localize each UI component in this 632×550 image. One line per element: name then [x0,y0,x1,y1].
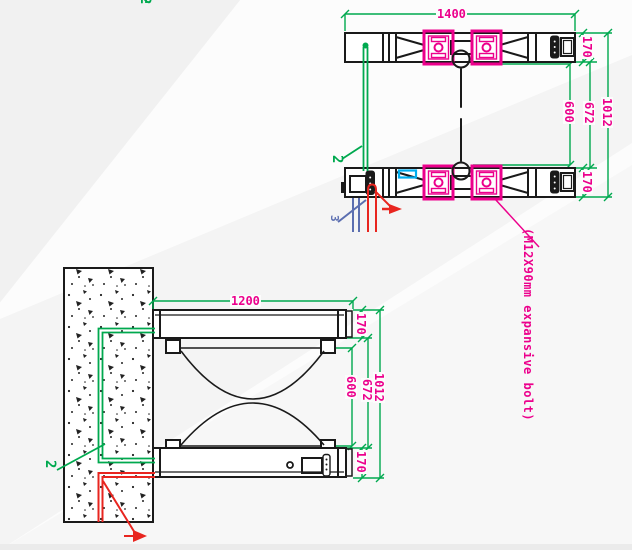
red-arrowhead [133,530,147,542]
plan-cable-blue [338,198,366,232]
cad-drawing-canvas: 1400 170 600 672 1012 170 1200 170 600 6… [0,0,632,550]
side-horn-assembly [165,340,335,453]
dim-plan-between-rails: 672 [583,101,595,125]
dim-side-cab-top: 170 [355,312,367,336]
dim-plan-overall-depth: 1012 [601,97,613,128]
dim-side-inner-span: 600 [345,375,357,399]
mount-tab [341,182,345,193]
bolt-note-label: (M12X90mm expansive bolt) [522,228,534,421]
dim-plan-overall-width: 1400 [436,8,467,20]
plan-view [146,0,612,247]
callout-2-side: 2 [43,460,57,468]
dim-side-overall-height: 1012 [373,372,385,403]
dim-side-overall-width: 1200 [230,295,261,307]
side-top-cabinet [153,310,352,338]
dim-plan-rail-bottom: 170 [581,170,593,194]
callout-2-edge: 2 [138,0,152,4]
callout-3-plan: 3 [329,215,340,222]
dim-plan-rail-top: 170 [581,35,593,59]
dim-side-cab-bottom: 170 [355,450,367,474]
wall-section [64,268,153,522]
side-view [57,268,384,542]
side-bottom-cabinet [153,448,352,477]
callout-2-plan: 2 [330,155,344,163]
drawing-linework [0,0,632,550]
dim-plan-inner-span: 600 [563,100,575,124]
plan-top-rail [345,33,575,62]
red-arrowhead [389,204,402,214]
